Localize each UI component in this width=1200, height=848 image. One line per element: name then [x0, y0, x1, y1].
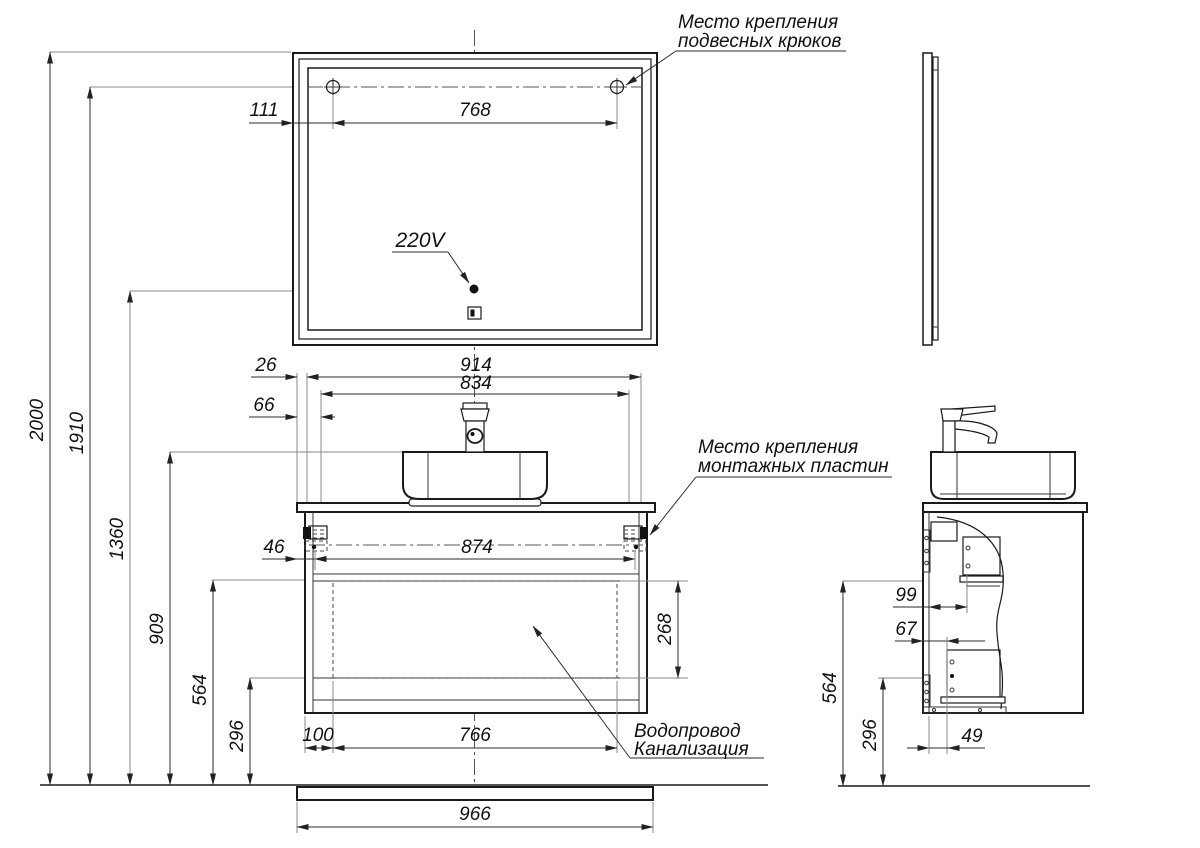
mirror-front-view: 111 768 220V Место крепления подвесных к…: [249, 12, 846, 345]
dim-874: 874: [461, 537, 493, 558]
dim-46: 46: [263, 537, 285, 558]
technical-drawing: 2000 1910 1360 909 564 296 111 768: [0, 0, 1200, 848]
dim-268: 268: [655, 613, 676, 646]
plates-note-line1: Место крепления: [698, 437, 858, 458]
wall-strip: [297, 787, 653, 800]
upper-slide-rail: [960, 576, 1003, 582]
installation-drawing-page: 2000 1910 1360 909 564 296 111 768: [0, 0, 1200, 848]
dim-2000: 2000: [27, 398, 48, 442]
dim-1910: 1910: [67, 411, 88, 454]
dim-768: 768: [459, 100, 491, 121]
dim-296-front: 296: [227, 720, 248, 753]
dim-67: 67: [895, 619, 918, 640]
dim-111: 111: [250, 100, 279, 121]
vessel-sink-front: [403, 452, 547, 506]
vessel-sink-side: [931, 452, 1075, 499]
countertop-side: [923, 503, 1087, 512]
faucet-side: [941, 406, 997, 452]
power-point-dot: [470, 285, 479, 294]
dim-49: 49: [961, 726, 983, 747]
dim-100: 100: [302, 725, 334, 746]
dim-66: 66: [253, 395, 275, 416]
voltage-label: 220V: [394, 229, 446, 252]
plates-note-line2: монтажных пластин: [698, 456, 889, 477]
dim-26: 26: [254, 355, 277, 376]
dim-766: 766: [459, 725, 491, 746]
dim-834: 834: [460, 373, 492, 394]
hooks-note-line2: подвесных крюков: [678, 31, 841, 52]
mirror-side-view: [923, 53, 938, 345]
lower-slide-rail: [941, 697, 1005, 703]
plates-note: Место крепления монтажных пластин: [650, 437, 892, 535]
dim-564-side: 564: [820, 672, 841, 704]
dim-99: 99: [895, 585, 917, 606]
dim-564-front: 564: [190, 674, 211, 706]
dim-909: 909: [147, 613, 168, 645]
dim-296-side: 296: [860, 719, 881, 752]
dim-1360: 1360: [107, 517, 128, 560]
dim-966: 966: [459, 804, 491, 825]
utility-note-line2: Канализация: [634, 739, 749, 760]
vanity-front-view: 26 914 834 66: [249, 355, 892, 833]
hooks-note-line1: Место крепления: [678, 12, 838, 33]
hooks-note: Место крепления подвесных крюков: [626, 12, 846, 85]
faucet-front: [461, 403, 489, 452]
